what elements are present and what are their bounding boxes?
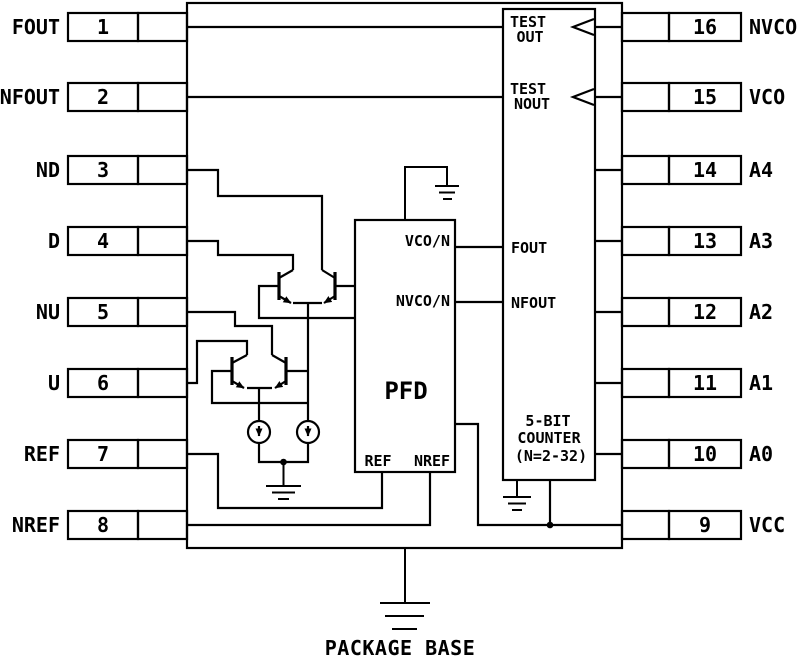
schematic-canvas: PFD VCO/N NVCO/N REF NREF TEST OUT TEST … xyxy=(0,0,800,659)
pins-left: 1FOUT2NFOUT3ND4D5NU6U7REF8NREF xyxy=(0,13,187,539)
ic-outline xyxy=(187,3,622,548)
pin-extension-box xyxy=(138,13,187,41)
pfd-block xyxy=(355,220,455,472)
pfd-port-nvco-n: NVCO/N xyxy=(396,292,450,310)
pin-extension-box xyxy=(138,83,187,111)
junction-dot xyxy=(547,522,554,529)
pin-extension-box xyxy=(622,440,669,468)
pin-nd: 3ND xyxy=(36,156,187,184)
counter-name-line2: COUNTER xyxy=(517,429,581,447)
pin-extension-box xyxy=(138,156,187,184)
pin-label: NU xyxy=(36,300,60,324)
pin-number: 9 xyxy=(699,513,711,537)
counter-test-nout-line2: NOUT xyxy=(514,95,550,113)
pin-number: 5 xyxy=(97,300,109,324)
pin-number: 2 xyxy=(97,85,109,109)
pin-d: 4D xyxy=(48,227,187,255)
transistor-upper-right-emitter-arrow-icon xyxy=(324,296,335,303)
pin-number: 6 xyxy=(97,371,109,395)
pin-label: NREF xyxy=(12,513,60,537)
pin-extension-box xyxy=(138,369,187,397)
pin-label: FOUT xyxy=(12,15,60,39)
pin-extension-box xyxy=(622,511,669,539)
counter-name-line3: (N=2-32) xyxy=(515,447,587,465)
pfd-port-ref: REF xyxy=(364,452,391,470)
pin-number: 8 xyxy=(97,513,109,537)
pin-fout: 1FOUT xyxy=(12,13,187,41)
pin-a3: 13A3 xyxy=(622,227,773,255)
pin-label: ND xyxy=(36,158,60,182)
pin-extension-box xyxy=(138,511,187,539)
ground-package-icon xyxy=(380,548,430,629)
pin-ref: 7REF xyxy=(24,440,187,468)
wire-nref xyxy=(187,472,430,525)
test-nout-arrow-icon xyxy=(573,89,594,105)
test-out-arrow-icon xyxy=(573,19,594,35)
pin-extension-box xyxy=(622,369,669,397)
transistor-lower-left-emitter-arrow-icon xyxy=(232,381,244,388)
pin-a0: 10A0 xyxy=(622,440,773,468)
pin-extension-box xyxy=(622,156,669,184)
counter-test-out-line2: OUT xyxy=(516,28,543,46)
pin-extension-box xyxy=(138,227,187,255)
pin-extension-box xyxy=(622,298,669,326)
schematic-page: PFD VCO/N NVCO/N REF NREF TEST OUT TEST … xyxy=(0,0,800,659)
pin-number: 3 xyxy=(97,158,109,182)
pin-nref: 8NREF xyxy=(12,511,187,539)
ground-analog-icon xyxy=(266,462,301,499)
pin-a2: 12A2 xyxy=(622,298,773,326)
wire-u xyxy=(187,341,247,383)
pin-nvco: 16NVCO xyxy=(622,13,797,41)
pin-number: 11 xyxy=(693,371,717,395)
pin-number: 16 xyxy=(693,15,717,39)
package-base-label: PACKAGE BASE xyxy=(325,636,476,659)
wire-d xyxy=(187,241,293,270)
pin-nu: 5NU xyxy=(36,298,187,326)
pin-label: A2 xyxy=(749,300,773,324)
pins-right: 16NVCO15VCO14A413A312A211A110A09VCC xyxy=(622,13,797,539)
counter-port-fout: FOUT xyxy=(511,239,547,257)
pin-vco: 15VCO xyxy=(622,83,785,111)
pin-number: 12 xyxy=(693,300,717,324)
pin-extension-box xyxy=(622,83,669,111)
pfd-port-vco-n: VCO/N xyxy=(405,232,450,250)
pin-a4: 14A4 xyxy=(622,156,773,184)
transistor-lower-right-collector xyxy=(272,355,286,363)
pin-u: 6U xyxy=(48,369,187,397)
pin-label: NVCO xyxy=(749,15,797,39)
pin-number: 13 xyxy=(693,229,717,253)
pin-label: A3 xyxy=(749,229,773,253)
pin-extension-box xyxy=(622,227,669,255)
pin-extension-box xyxy=(138,298,187,326)
pin-label: REF xyxy=(24,442,60,466)
pin-label: VCO xyxy=(749,85,785,109)
pin-number: 10 xyxy=(693,442,717,466)
pin-a1: 11A1 xyxy=(622,369,773,397)
pin-vcc: 9VCC xyxy=(622,511,785,539)
transistor-upper-left-collector xyxy=(279,270,293,278)
pin-extension-box xyxy=(138,440,187,468)
pin-extension-box xyxy=(622,13,669,41)
pin-label: VCC xyxy=(749,513,785,537)
pin-label: A4 xyxy=(749,158,773,182)
pin-number: 7 xyxy=(97,442,109,466)
pfd-title: PFD xyxy=(384,377,427,405)
ground-pfd-top-icon xyxy=(405,167,459,220)
transistor-upper-right-collector xyxy=(322,270,335,278)
ground-counter-icon xyxy=(503,480,531,510)
pin-number: 14 xyxy=(693,158,717,182)
pin-number: 4 xyxy=(97,229,109,253)
pin-nfout: 2NFOUT xyxy=(0,83,187,111)
pin-number: 15 xyxy=(693,85,717,109)
pin-label: D xyxy=(48,229,60,253)
pfd-port-nref: NREF xyxy=(414,452,450,470)
counter-name-line1: 5-BIT xyxy=(525,412,570,430)
transistor-lower-left-collector xyxy=(232,355,247,363)
pin-label: A1 xyxy=(749,371,773,395)
transistor-lower-right-emitter-arrow-icon xyxy=(275,381,286,388)
transistor-upper-left-emitter-arrow-icon xyxy=(279,296,291,303)
pin-label: U xyxy=(48,371,60,395)
pin-label: A0 xyxy=(749,442,773,466)
pin-number: 1 xyxy=(97,15,109,39)
pin-label: NFOUT xyxy=(0,85,60,109)
counter-port-nfout: NFOUT xyxy=(511,294,556,312)
